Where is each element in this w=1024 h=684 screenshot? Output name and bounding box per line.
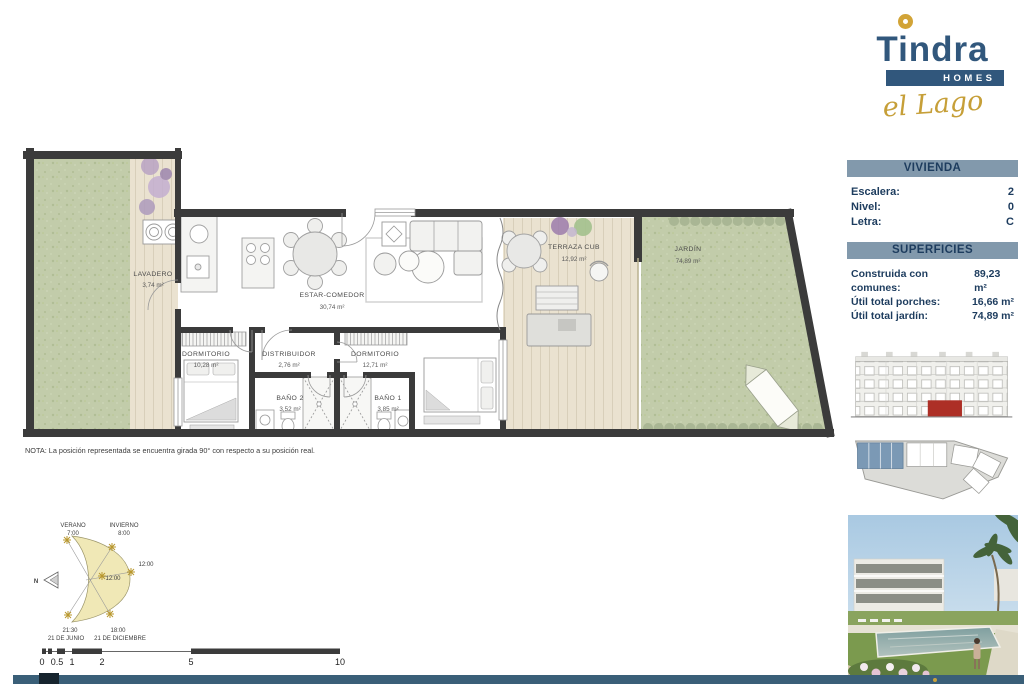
vivienda-row-letra: Letra: C xyxy=(851,215,1014,230)
winter-end-date: 21 DE DICIEMBRE xyxy=(94,636,146,642)
room-label-estar-comedor: ESTAR-COMEDOR xyxy=(299,292,364,299)
vivienda-row-escalera: Escalera: 2 xyxy=(851,185,1014,200)
room-area-distribuidor: 2,76 m² xyxy=(278,362,299,369)
scale-tick-2: 2 xyxy=(99,657,104,667)
sidebar: Tindra HOMES el Lago VIVIENDA Escalera: … xyxy=(845,0,1020,684)
sun-diagram: N VERANO 7:00 INVIERNO 8:00 12:00 12:00 … xyxy=(34,523,154,642)
footer-gold-dot-icon xyxy=(933,678,937,682)
vivienda-header: VIVIENDA xyxy=(847,160,1018,177)
room-label-jardin: JARDÍN xyxy=(675,244,702,253)
photo-grounds xyxy=(848,611,1018,684)
superficies-row-construida: Construida con comunes: 89,23 m² xyxy=(851,267,1014,295)
room-area-dormitorio1: 10,28 m² xyxy=(194,362,219,369)
letra-value: C xyxy=(1006,215,1014,230)
room-area-terraza: 12,92 m² xyxy=(562,256,587,263)
kitchen-counter xyxy=(181,216,217,292)
jardin-value: 74,89 m² xyxy=(972,309,1014,323)
logo-ring-icon xyxy=(898,14,913,29)
floorplan-drawing: LAVADERO 3,74 m² ESTAR-COMEDOR 30,74 m² … xyxy=(0,0,845,684)
invierno-time: 8:00 xyxy=(118,531,130,537)
winter-end-time: 18:00 xyxy=(110,628,126,634)
room-label-dormitorio2: DORMITORIO xyxy=(351,351,399,358)
noon-center-label: 12:00 xyxy=(105,576,121,582)
room-label-lavadero: LAVADERO xyxy=(133,271,172,278)
escalera-value: 2 xyxy=(1008,185,1014,200)
escalera-label: Escalera: xyxy=(851,185,900,200)
logo-brand: Tindra xyxy=(858,30,1008,70)
development-render-photo xyxy=(848,515,1018,684)
north-arrow: N xyxy=(34,572,58,588)
logo: Tindra HOMES el Lago xyxy=(858,30,1008,120)
left-garden-grass xyxy=(33,155,130,434)
footer-bar xyxy=(13,675,1024,684)
superficies-row-jardin: Útil total jardín: 74,89 m² xyxy=(851,309,1014,323)
room-area-estar-comedor: 30,74 m² xyxy=(320,304,345,311)
room-label-dormitorio1: DORMITORIO xyxy=(182,351,230,358)
noon-right-label: 12:00 xyxy=(138,562,154,568)
room-area-bano1: 3,85 m² xyxy=(377,406,398,413)
sun-crescent xyxy=(72,536,130,622)
superficies-header: SUPERFICIES xyxy=(847,242,1018,259)
scale-tick-10: 10 xyxy=(335,657,345,667)
siteplan-drawing xyxy=(855,441,1007,499)
superficies-row-porches: Útil total porches: 16,66 m² xyxy=(851,295,1014,309)
superficies-rows: Construida con comunes: 89,23 m² Útil to… xyxy=(845,259,1020,323)
building-elevation-thumbnail xyxy=(848,349,1018,425)
room-label-distribuidor: DISTRIBUIDOR xyxy=(262,351,316,358)
letra-label: Letra: xyxy=(851,215,882,230)
summer-end-date: 21 DE JUNIO xyxy=(48,636,85,642)
vivienda-rows: Escalera: 2 Nivel: 0 Letra: C xyxy=(845,177,1020,230)
vivienda-row-nivel: Nivel: 0 xyxy=(851,200,1014,215)
construida-value: 89,23 m² xyxy=(974,267,1014,295)
nivel-label: Nivel: xyxy=(851,200,881,215)
logo-homes-bar: HOMES xyxy=(886,70,1004,86)
room-area-jardin: 74,89 m² xyxy=(676,258,701,265)
room-label-terraza: TERRAZA CUB xyxy=(548,244,600,251)
room-area-lavadero: 3,74 m² xyxy=(142,282,163,289)
elevation-drawing xyxy=(850,352,1011,417)
logo-homes-text: HOMES xyxy=(943,73,995,84)
room-label-bano2: BAÑO 2 xyxy=(276,393,303,402)
room-area-bano2: 3,52 m² xyxy=(279,406,300,413)
nivel-value: 0 xyxy=(1008,200,1014,215)
kitchen-island xyxy=(242,238,274,288)
siteplan-thumbnail xyxy=(848,433,1018,505)
orientation-note: NOTA: La posición representada se encuen… xyxy=(25,446,315,455)
north-label: N xyxy=(34,579,38,585)
porches-value: 16,66 m² xyxy=(972,295,1014,309)
plan-sheet: LAVADERO 3,74 m² ESTAR-COMEDOR 30,74 m² … xyxy=(0,0,1024,684)
construida-label: Construida con comunes: xyxy=(851,267,974,295)
highlighted-unit-elevation xyxy=(927,400,961,416)
room-label-bano1: BAÑO 1 xyxy=(374,393,401,402)
scale-tick-1: 1 xyxy=(69,657,74,667)
scale-tick-05: 0.5 xyxy=(51,657,64,667)
porches-label: Útil total porches: xyxy=(851,295,940,309)
logo-subbrand: el Lago xyxy=(857,84,1009,125)
scale-bar: 0 0.5 1 2 5 10 xyxy=(39,649,345,668)
lavadero-deck xyxy=(130,155,178,434)
invierno-label: INVIERNO xyxy=(109,523,138,529)
jardin-label: Útil total jardín: xyxy=(851,309,928,323)
room-area-dormitorio2: 12,71 m² xyxy=(363,362,388,369)
verano-time: 7:00 xyxy=(67,531,79,537)
scale-tick-0: 0 xyxy=(39,657,44,667)
right-garden-grass xyxy=(641,215,829,432)
summer-end-time: 21:30 xyxy=(62,628,78,634)
verano-label: VERANO xyxy=(60,523,86,529)
scale-tick-5: 5 xyxy=(188,657,193,667)
footer-logo-mark xyxy=(39,673,59,684)
